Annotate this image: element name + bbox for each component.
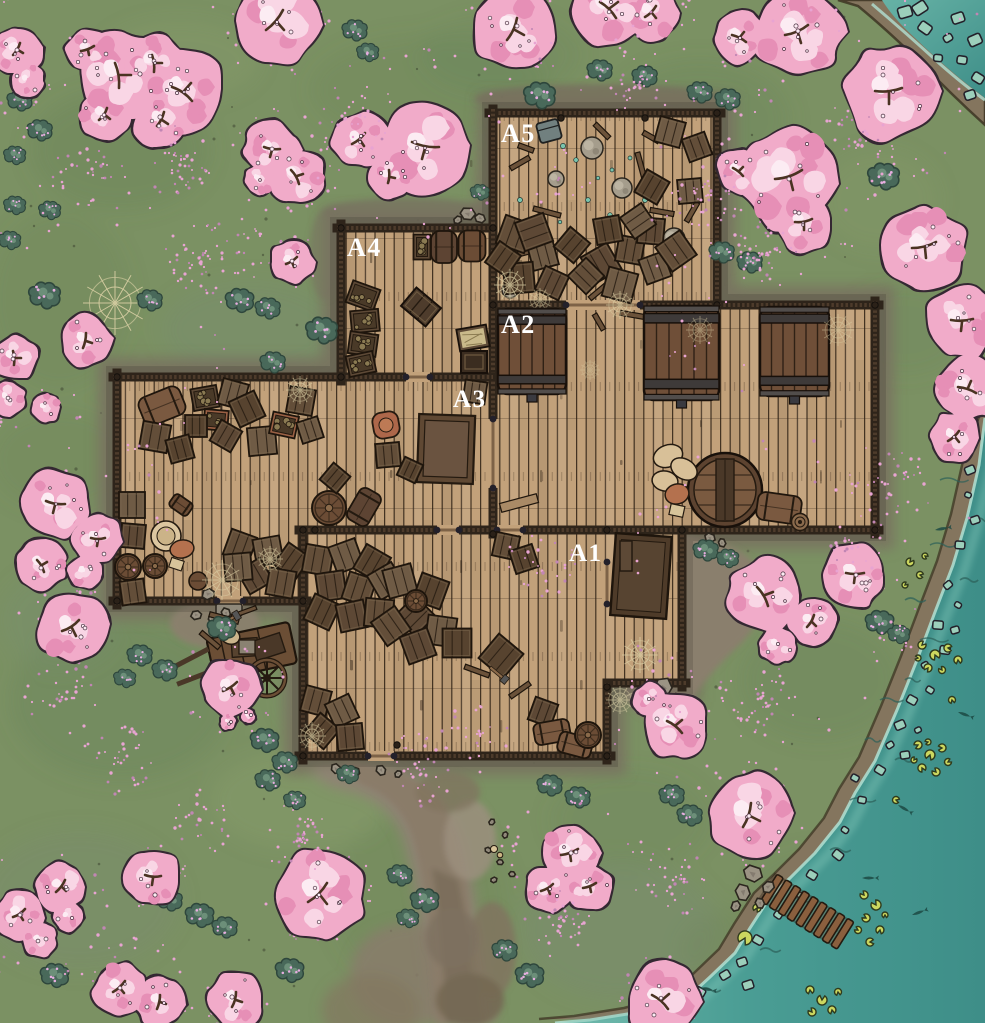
- svg-text:A2: A2: [501, 310, 536, 339]
- svg-text:A4: A4: [347, 233, 382, 262]
- svg-text:A1: A1: [569, 540, 603, 567]
- svg-text:A3: A3: [453, 386, 487, 413]
- svg-text:A5: A5: [501, 119, 536, 148]
